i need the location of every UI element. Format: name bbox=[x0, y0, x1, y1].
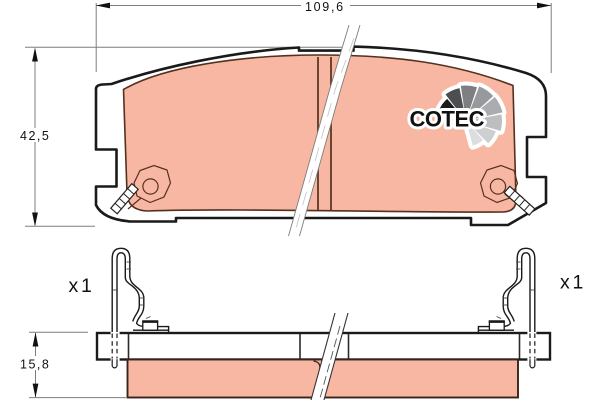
svg-text:15,8: 15,8 bbox=[20, 358, 50, 372]
svg-text:42,5: 42,5 bbox=[20, 129, 50, 143]
svg-text:COTEC: COTEC bbox=[410, 107, 485, 132]
svg-text:x1: x1 bbox=[69, 275, 95, 297]
svg-text:x1: x1 bbox=[560, 272, 586, 294]
svg-text:109,6: 109,6 bbox=[305, 0, 345, 14]
